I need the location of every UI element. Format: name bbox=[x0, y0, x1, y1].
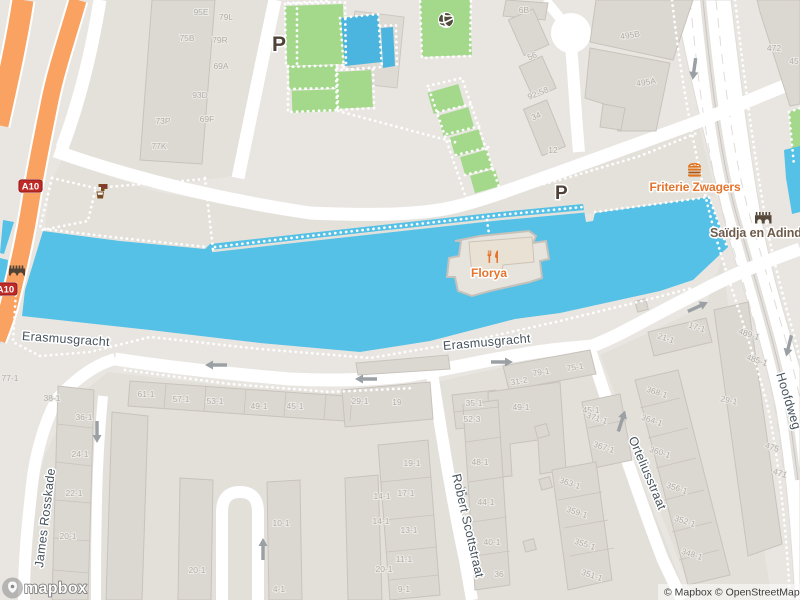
svg-text:36: 36 bbox=[494, 569, 504, 579]
svg-text:mapbox: mapbox bbox=[24, 580, 87, 597]
svg-text:9-1: 9-1 bbox=[398, 584, 411, 594]
svg-text:P: P bbox=[272, 33, 286, 56]
svg-text:52-3: 52-3 bbox=[463, 414, 480, 424]
svg-text:29-1: 29-1 bbox=[351, 396, 368, 406]
svg-text:48-1: 48-1 bbox=[471, 457, 488, 467]
svg-text:79L: 79L bbox=[219, 12, 233, 22]
svg-text:14-1: 14-1 bbox=[373, 491, 390, 501]
svg-text:10-1: 10-1 bbox=[272, 518, 289, 528]
svg-text:95E: 95E bbox=[193, 7, 208, 17]
svg-text:A10: A10 bbox=[22, 182, 39, 193]
svg-text:20-1: 20-1 bbox=[59, 531, 76, 541]
svg-text:Friterie Zwagers: Friterie Zwagers bbox=[649, 180, 741, 194]
svg-text:P: P bbox=[555, 183, 568, 204]
svg-text:49-1: 49-1 bbox=[512, 402, 529, 412]
svg-text:45: 45 bbox=[789, 56, 799, 66]
svg-text:45-1: 45-1 bbox=[286, 401, 303, 411]
svg-text:© Mapbox © OpenStreetMap: © Mapbox © OpenStreetMap bbox=[664, 587, 800, 599]
svg-text:73P: 73P bbox=[155, 116, 170, 126]
svg-text:49-1: 49-1 bbox=[250, 401, 267, 411]
svg-text:38-1: 38-1 bbox=[43, 393, 60, 403]
svg-text:472: 472 bbox=[767, 43, 781, 53]
svg-text:19: 19 bbox=[392, 397, 402, 407]
svg-text:4-1: 4-1 bbox=[273, 584, 286, 594]
svg-text:22-1: 22-1 bbox=[65, 488, 82, 498]
svg-text:35-1: 35-1 bbox=[465, 398, 482, 408]
svg-text:13-1: 13-1 bbox=[400, 525, 417, 535]
svg-text:19-1: 19-1 bbox=[403, 458, 420, 468]
svg-text:20-1: 20-1 bbox=[188, 565, 205, 575]
svg-text:12: 12 bbox=[548, 145, 558, 155]
svg-text:44-1: 44-1 bbox=[477, 497, 494, 507]
svg-text:36-1: 36-1 bbox=[75, 412, 92, 422]
svg-text:79R: 79R bbox=[212, 35, 228, 45]
svg-text:Florya: Florya bbox=[471, 266, 507, 280]
svg-text:93D: 93D bbox=[192, 90, 208, 100]
svg-text:20-1: 20-1 bbox=[375, 564, 392, 574]
svg-text:6B: 6B bbox=[519, 5, 530, 15]
svg-text:14-1: 14-1 bbox=[372, 516, 389, 526]
svg-text:40-1: 40-1 bbox=[483, 537, 500, 547]
svg-text:24-1: 24-1 bbox=[71, 449, 88, 459]
svg-text:77K: 77K bbox=[151, 141, 166, 151]
svg-text:53-1: 53-1 bbox=[206, 396, 223, 406]
svg-text:Saïdja en Adindab: Saïdja en Adindab bbox=[710, 226, 800, 240]
svg-text:A10: A10 bbox=[0, 285, 14, 296]
svg-text:69A: 69A bbox=[213, 61, 228, 71]
svg-text:75B: 75B bbox=[179, 33, 194, 43]
svg-text:61-1: 61-1 bbox=[137, 389, 154, 399]
svg-text:11-1: 11-1 bbox=[396, 554, 413, 564]
svg-text:17-1: 17-1 bbox=[397, 488, 414, 498]
svg-text:77-1: 77-1 bbox=[1, 373, 18, 383]
svg-text:57-1: 57-1 bbox=[172, 394, 189, 404]
svg-text:69F: 69F bbox=[200, 114, 215, 124]
